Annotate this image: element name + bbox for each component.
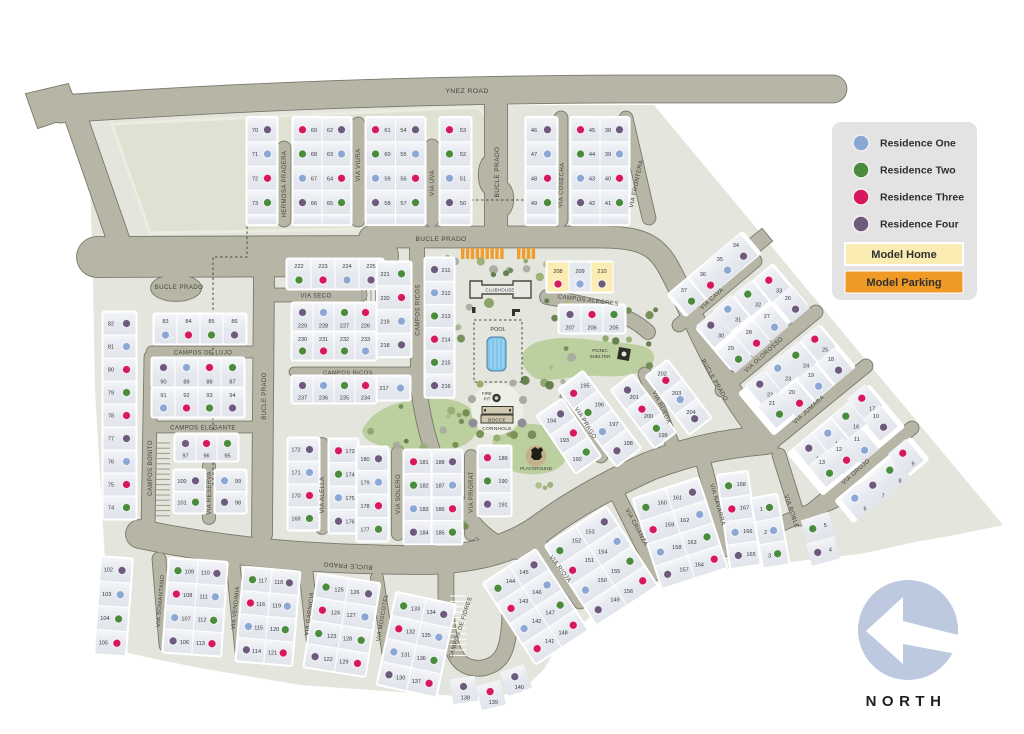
svg-text:100: 100 (177, 479, 186, 485)
svg-text:Residence Two: Residence Two (880, 165, 956, 177)
svg-text:101: 101 (177, 501, 186, 507)
svg-text:103: 103 (102, 592, 111, 598)
svg-text:PICNIC: PICNIC (592, 348, 608, 353)
svg-text:178: 178 (360, 504, 369, 510)
svg-text:145: 145 (519, 570, 528, 576)
svg-text:Model Parking: Model Parking (866, 277, 941, 289)
svg-text:183: 183 (419, 507, 428, 513)
svg-text:29: 29 (728, 346, 734, 352)
svg-text:YNEZ ROAD: YNEZ ROAD (445, 88, 488, 95)
svg-text:40: 40 (605, 177, 611, 183)
svg-text:185: 185 (435, 531, 444, 537)
svg-text:113: 113 (196, 641, 205, 647)
svg-text:117: 117 (258, 579, 267, 585)
svg-text:66: 66 (311, 201, 317, 207)
svg-text:BUCLE PRADO: BUCLE PRADO (494, 147, 501, 198)
svg-text:182: 182 (419, 484, 428, 490)
svg-text:112: 112 (198, 618, 207, 624)
svg-text:128: 128 (343, 636, 352, 642)
svg-text:146: 146 (532, 590, 541, 596)
svg-text:32: 32 (755, 302, 761, 308)
svg-text:141: 141 (545, 639, 554, 645)
svg-text:23: 23 (785, 376, 791, 382)
svg-text:131: 131 (401, 653, 410, 659)
svg-text:12: 12 (836, 447, 842, 453)
svg-text:63: 63 (327, 152, 333, 158)
svg-text:126: 126 (350, 590, 359, 596)
svg-text:147: 147 (545, 610, 554, 616)
svg-text:CAMPOS RICOS: CAMPOS RICOS (416, 284, 422, 335)
svg-text:6: 6 (864, 506, 867, 512)
svg-text:205: 205 (609, 326, 618, 332)
svg-text:11: 11 (854, 437, 860, 443)
svg-text:213: 213 (441, 314, 450, 320)
svg-text:60: 60 (384, 152, 390, 158)
svg-text:93: 93 (206, 393, 212, 399)
svg-text:187: 187 (435, 484, 444, 490)
svg-text:VIA RESERVA: VIA RESERVA (207, 471, 213, 515)
svg-text:Residence Four: Residence Four (880, 219, 959, 231)
svg-text:215: 215 (441, 361, 450, 367)
svg-text:125: 125 (334, 587, 343, 593)
svg-text:217: 217 (379, 386, 388, 392)
svg-text:150: 150 (598, 578, 607, 584)
svg-text:21: 21 (769, 401, 775, 407)
svg-text:VIA ALELLA: VIA ALELLA (320, 477, 326, 514)
svg-text:223: 223 (318, 264, 327, 270)
svg-text:227: 227 (340, 324, 349, 330)
svg-text:104: 104 (100, 616, 109, 622)
svg-text:136: 136 (417, 656, 426, 662)
svg-text:163: 163 (687, 540, 696, 546)
svg-text:79: 79 (108, 391, 114, 397)
svg-text:76: 76 (108, 460, 114, 466)
svg-text:124: 124 (331, 611, 340, 617)
svg-text:140: 140 (515, 685, 524, 691)
svg-text:73: 73 (252, 201, 258, 207)
svg-text:230: 230 (298, 337, 307, 343)
svg-text:234: 234 (361, 396, 370, 402)
svg-text:115: 115 (254, 626, 263, 632)
svg-text:107: 107 (181, 617, 190, 623)
svg-text:214: 214 (441, 337, 450, 343)
svg-text:PLAYGROUND: PLAYGROUND (520, 466, 553, 471)
svg-text:SHELTER: SHELTER (590, 354, 612, 359)
svg-text:231: 231 (319, 337, 328, 343)
svg-text:155: 155 (611, 569, 620, 575)
svg-text:186: 186 (435, 507, 444, 513)
svg-text:BUCLE PRADO: BUCLE PRADO (416, 236, 467, 243)
svg-text:216: 216 (441, 384, 450, 390)
svg-text:233: 233 (361, 337, 370, 343)
svg-text:221: 221 (380, 272, 389, 278)
svg-text:10: 10 (873, 414, 879, 420)
svg-text:193: 193 (560, 438, 569, 444)
svg-text:172: 172 (291, 448, 300, 454)
svg-text:91: 91 (160, 393, 166, 399)
svg-text:198: 198 (624, 441, 633, 447)
svg-text:FIRE: FIRE (482, 391, 492, 396)
svg-text:106: 106 (180, 640, 189, 646)
svg-text:236: 236 (319, 396, 328, 402)
svg-text:220: 220 (380, 296, 389, 302)
svg-text:86: 86 (231, 319, 237, 325)
svg-text:168: 168 (737, 482, 746, 488)
svg-text:226: 226 (361, 324, 370, 330)
svg-text:5: 5 (824, 523, 827, 529)
svg-text:18: 18 (828, 357, 834, 363)
svg-text:218: 218 (380, 343, 389, 349)
svg-text:89: 89 (183, 380, 189, 386)
svg-text:200: 200 (644, 414, 653, 420)
svg-text:39: 39 (605, 152, 611, 158)
svg-text:VIA PRIORAT: VIA PRIORAT (469, 471, 475, 513)
svg-text:37: 37 (681, 288, 687, 294)
svg-text:4: 4 (829, 547, 832, 553)
svg-text:POOL: POOL (490, 327, 505, 333)
svg-text:192: 192 (572, 457, 581, 463)
svg-text:110: 110 (201, 571, 210, 577)
svg-text:129: 129 (339, 660, 348, 666)
svg-text:194: 194 (547, 419, 556, 425)
svg-text:109: 109 (185, 570, 194, 576)
svg-text:196: 196 (595, 403, 604, 409)
svg-text:54: 54 (400, 128, 406, 134)
svg-text:65: 65 (327, 201, 333, 207)
svg-text:53: 53 (460, 128, 466, 134)
svg-text:143: 143 (519, 599, 528, 605)
svg-text:BUCLE PRADO: BUCLE PRADO (155, 284, 204, 291)
svg-text:180: 180 (360, 457, 369, 463)
svg-text:170: 170 (291, 494, 300, 500)
svg-text:154: 154 (598, 549, 607, 555)
svg-text:96: 96 (203, 454, 209, 460)
svg-text:181: 181 (419, 460, 428, 466)
svg-text:1: 1 (760, 507, 763, 513)
svg-text:165: 165 (746, 552, 755, 558)
svg-text:206: 206 (587, 326, 596, 332)
svg-text:CLUBHOUSE: CLUBHOUSE (485, 288, 514, 293)
svg-text:164: 164 (695, 562, 704, 568)
svg-text:51: 51 (460, 177, 466, 183)
svg-text:7: 7 (882, 493, 885, 499)
svg-text:207: 207 (565, 326, 574, 332)
svg-text:27: 27 (764, 314, 770, 320)
svg-text:90: 90 (160, 380, 166, 386)
svg-text:67: 67 (311, 177, 317, 183)
svg-text:94: 94 (229, 393, 235, 399)
svg-text:HERMOSA PRADERA: HERMOSA PRADERA (282, 151, 288, 218)
svg-text:VIA VIURA: VIA VIURA (356, 149, 362, 182)
svg-text:157: 157 (679, 567, 688, 573)
svg-text:48: 48 (531, 177, 537, 183)
svg-text:92: 92 (183, 393, 189, 399)
svg-text:47: 47 (531, 152, 537, 158)
svg-text:225: 225 (366, 264, 375, 270)
svg-text:62: 62 (327, 128, 333, 134)
svg-text:CORNHOLE: CORNHOLE (482, 426, 512, 432)
svg-text:57: 57 (400, 201, 406, 207)
svg-text:153: 153 (585, 530, 594, 536)
svg-text:160: 160 (658, 500, 667, 506)
svg-text:30: 30 (718, 333, 724, 339)
svg-text:201: 201 (629, 395, 638, 401)
svg-text:CAMPOS ELEGANTE: CAMPOS ELEGANTE (170, 426, 236, 432)
svg-text:134: 134 (426, 610, 435, 616)
svg-text:44: 44 (589, 152, 595, 158)
svg-text:13: 13 (819, 460, 825, 466)
svg-text:232: 232 (340, 337, 349, 343)
svg-text:2: 2 (764, 530, 767, 536)
svg-text:8: 8 (899, 478, 902, 484)
svg-text:41: 41 (605, 201, 611, 207)
svg-text:228: 228 (319, 324, 328, 330)
svg-text:42: 42 (589, 201, 595, 207)
svg-text:61: 61 (384, 128, 390, 134)
svg-text:80: 80 (108, 368, 114, 374)
svg-text:209: 209 (575, 269, 584, 275)
svg-text:88: 88 (206, 380, 212, 386)
svg-text:59: 59 (384, 177, 390, 183)
svg-text:121: 121 (268, 650, 277, 656)
svg-text:58: 58 (384, 201, 390, 207)
svg-text:77: 77 (108, 437, 114, 443)
svg-text:210: 210 (597, 269, 606, 275)
svg-text:VIA SECO: VIA SECO (300, 294, 331, 300)
svg-text:102: 102 (104, 568, 113, 574)
svg-text:190: 190 (498, 479, 507, 485)
svg-text:144: 144 (506, 579, 515, 585)
svg-text:PIT: PIT (484, 397, 491, 402)
svg-text:197: 197 (609, 422, 618, 428)
svg-text:87: 87 (229, 380, 235, 386)
svg-text:148: 148 (558, 630, 567, 636)
svg-text:64: 64 (327, 177, 333, 183)
svg-text:82: 82 (108, 322, 114, 328)
svg-text:49: 49 (531, 201, 537, 207)
svg-text:46: 46 (531, 128, 537, 134)
svg-text:118: 118 (274, 580, 283, 586)
svg-text:108: 108 (183, 593, 192, 599)
svg-text:114: 114 (252, 649, 261, 655)
svg-text:151: 151 (585, 558, 594, 564)
svg-text:189: 189 (498, 456, 507, 462)
svg-text:CAMPOS BONITO: CAMPOS BONITO (148, 440, 154, 496)
svg-text:43: 43 (589, 177, 595, 183)
svg-text:174: 174 (345, 473, 354, 479)
svg-text:38: 38 (605, 128, 611, 134)
svg-text:19: 19 (808, 373, 814, 379)
svg-text:33: 33 (776, 288, 782, 294)
svg-text:130: 130 (396, 676, 405, 682)
svg-text:237: 237 (298, 396, 307, 402)
svg-text:235: 235 (340, 396, 349, 402)
svg-text:34: 34 (733, 243, 739, 249)
svg-text:139: 139 (489, 700, 498, 706)
svg-text:45: 45 (589, 128, 595, 134)
svg-text:Residence One: Residence One (880, 138, 956, 150)
svg-text:84: 84 (185, 319, 191, 325)
svg-text:68: 68 (311, 152, 317, 158)
svg-text:166: 166 (743, 529, 752, 535)
svg-text:NORTH: NORTH (866, 693, 947, 710)
svg-text:31: 31 (735, 317, 741, 323)
svg-text:36: 36 (700, 272, 706, 278)
svg-text:24: 24 (803, 363, 809, 369)
svg-text:161: 161 (673, 495, 682, 501)
svg-text:177: 177 (360, 528, 369, 534)
svg-text:111: 111 (199, 594, 208, 600)
svg-text:142: 142 (532, 619, 541, 625)
svg-text:137: 137 (412, 679, 421, 685)
svg-text:26: 26 (785, 296, 791, 302)
svg-text:171: 171 (291, 471, 300, 477)
svg-text:CAMPOS DE LUJO: CAMPOS DE LUJO (174, 351, 233, 357)
svg-text:78: 78 (108, 414, 114, 420)
svg-text:173: 173 (345, 449, 354, 455)
svg-text:176: 176 (345, 520, 354, 526)
svg-text:56: 56 (400, 177, 406, 183)
svg-text:VIA UVA: VIA UVA (430, 170, 436, 196)
svg-text:35: 35 (717, 257, 723, 263)
svg-text:75: 75 (108, 483, 114, 489)
svg-text:81: 81 (108, 345, 114, 351)
svg-text:122: 122 (323, 657, 332, 663)
svg-text:85: 85 (208, 319, 214, 325)
svg-text:138: 138 (461, 695, 470, 701)
svg-text:159: 159 (665, 523, 674, 529)
svg-text:123: 123 (327, 634, 336, 640)
svg-text:152: 152 (572, 538, 581, 544)
svg-text:167: 167 (740, 506, 749, 512)
svg-text:9: 9 (912, 461, 915, 467)
svg-text:229: 229 (298, 324, 307, 330)
svg-text:219: 219 (380, 320, 389, 326)
svg-text:169: 169 (291, 517, 300, 523)
svg-text:99: 99 (235, 479, 241, 485)
svg-text:156: 156 (624, 589, 633, 595)
svg-text:184: 184 (419, 531, 428, 537)
svg-text:212: 212 (441, 291, 450, 297)
svg-text:71: 71 (252, 152, 258, 158)
svg-text:135: 135 (421, 633, 430, 639)
svg-text:133: 133 (411, 607, 420, 613)
svg-text:224: 224 (342, 264, 351, 270)
svg-text:195: 195 (580, 384, 589, 390)
svg-text:20: 20 (789, 390, 795, 396)
svg-text:119: 119 (272, 604, 281, 610)
svg-text:179: 179 (360, 481, 369, 487)
svg-text:16: 16 (853, 424, 859, 430)
svg-text:95: 95 (224, 454, 230, 460)
svg-text:222: 222 (294, 264, 303, 270)
svg-text:70: 70 (252, 128, 258, 134)
svg-text:50: 50 (460, 201, 466, 207)
svg-text:55: 55 (400, 152, 406, 158)
svg-text:211: 211 (442, 268, 451, 274)
svg-text:3: 3 (768, 553, 771, 559)
svg-text:83: 83 (162, 319, 168, 325)
svg-text:127: 127 (347, 613, 356, 619)
svg-text:175: 175 (345, 496, 354, 502)
svg-text:Model Home: Model Home (871, 249, 936, 261)
svg-text:162: 162 (680, 518, 689, 524)
svg-text:VIA SOLERO: VIA SOLERO (396, 474, 402, 514)
svg-text:116: 116 (256, 602, 265, 608)
svg-text:97: 97 (182, 454, 188, 460)
svg-text:199: 199 (658, 433, 667, 439)
svg-text:120: 120 (270, 627, 279, 633)
svg-text:69: 69 (311, 128, 317, 134)
svg-text:149: 149 (610, 598, 619, 604)
svg-text:98: 98 (235, 501, 241, 507)
svg-text:158: 158 (672, 545, 681, 551)
svg-text:74: 74 (108, 506, 114, 512)
svg-text:CAMPOS RICOS: CAMPOS RICOS (323, 371, 373, 377)
svg-text:188: 188 (435, 460, 444, 466)
svg-text:BUCLE PRADO: BUCLE PRADO (262, 372, 268, 419)
svg-text:Residence Three: Residence Three (880, 192, 964, 204)
svg-text:52: 52 (460, 152, 466, 158)
svg-text:105: 105 (99, 640, 108, 646)
svg-text:25: 25 (822, 347, 828, 353)
svg-text:208: 208 (553, 269, 562, 275)
svg-text:191: 191 (498, 503, 507, 509)
svg-text:BOCCE: BOCCE (488, 418, 506, 423)
svg-text:72: 72 (252, 177, 258, 183)
svg-text:28: 28 (746, 330, 752, 336)
svg-text:132: 132 (406, 630, 415, 636)
